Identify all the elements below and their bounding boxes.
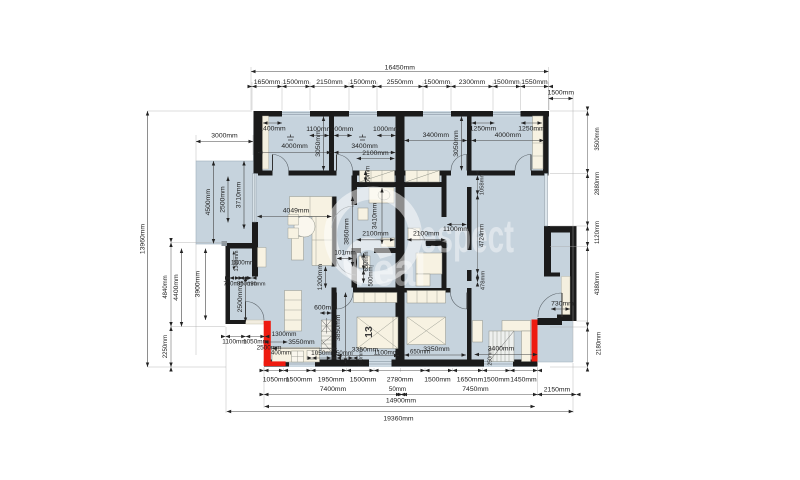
svg-text:4000mm: 4000mm bbox=[495, 132, 522, 139]
svg-text:7400mm: 7400mm bbox=[320, 386, 347, 393]
svg-text:3050mm: 3050mm bbox=[315, 130, 322, 157]
svg-text:3710mm: 3710mm bbox=[236, 181, 243, 208]
svg-text:2500mm: 2500mm bbox=[220, 186, 227, 213]
svg-text:2500mm: 2500mm bbox=[237, 286, 244, 313]
svg-text:3000mm: 3000mm bbox=[211, 133, 238, 140]
svg-text:1500mm: 1500mm bbox=[424, 79, 451, 86]
svg-text:4840mm: 4840mm bbox=[163, 275, 169, 298]
svg-text:16450mm: 16450mm bbox=[385, 64, 416, 71]
svg-text:3900mm: 3900mm bbox=[195, 271, 202, 298]
svg-text:4500mm: 4500mm bbox=[205, 189, 212, 216]
svg-text:3550mm: 3550mm bbox=[288, 339, 315, 346]
svg-text:3850mm: 3850mm bbox=[335, 314, 342, 341]
svg-text:1650mm: 1650mm bbox=[254, 79, 281, 86]
svg-text:3500mm: 3500mm bbox=[595, 127, 601, 150]
svg-text:1250mm: 1250mm bbox=[518, 126, 545, 133]
svg-text:1450mm: 1450mm bbox=[510, 377, 537, 384]
svg-text:250mm: 250mm bbox=[488, 348, 494, 365]
svg-text:2100mm: 2100mm bbox=[413, 231, 440, 238]
svg-text:1500mm: 1500mm bbox=[548, 90, 575, 97]
svg-text:13: 13 bbox=[363, 326, 375, 338]
svg-text:1500mm: 1500mm bbox=[424, 377, 451, 384]
svg-text:1500mm: 1500mm bbox=[483, 377, 510, 384]
svg-text:3400mm: 3400mm bbox=[351, 143, 378, 150]
svg-text:1000mm: 1000mm bbox=[373, 126, 400, 133]
svg-text:2300mm: 2300mm bbox=[459, 79, 486, 86]
svg-text:13960mm: 13960mm bbox=[139, 224, 146, 255]
svg-text:530mm: 530mm bbox=[359, 349, 365, 366]
svg-text:1400mm: 1400mm bbox=[259, 126, 286, 133]
svg-text:1120mm: 1120mm bbox=[595, 221, 601, 244]
svg-text:4000mm: 4000mm bbox=[281, 143, 308, 150]
svg-text:50mm: 50mm bbox=[389, 386, 406, 393]
svg-text:2180mm: 2180mm bbox=[597, 332, 603, 355]
svg-text:500mm: 500mm bbox=[369, 266, 375, 286]
svg-text:2880mm: 2880mm bbox=[595, 172, 601, 195]
svg-text:150mm: 150mm bbox=[248, 282, 266, 288]
svg-text:eal: eal bbox=[373, 244, 426, 296]
svg-text:3410mm: 3410mm bbox=[372, 202, 379, 229]
svg-text:1050mm: 1050mm bbox=[311, 350, 336, 357]
svg-text:7450mm: 7450mm bbox=[462, 386, 489, 393]
svg-text:2550mm: 2550mm bbox=[387, 79, 414, 86]
svg-text:2150mm: 2150mm bbox=[316, 79, 343, 86]
svg-text:4400mm: 4400mm bbox=[173, 274, 180, 301]
svg-text:2780mm: 2780mm bbox=[387, 377, 414, 384]
svg-text:1058mm: 1058mm bbox=[480, 173, 486, 196]
svg-text:1200mm: 1200mm bbox=[317, 264, 324, 291]
svg-text:730mm: 730mm bbox=[551, 301, 574, 308]
svg-text:1950mm: 1950mm bbox=[318, 377, 345, 384]
svg-text:1500mm: 1500mm bbox=[493, 79, 520, 86]
svg-text:1500mm: 1500mm bbox=[350, 79, 377, 86]
svg-text:3050mm: 3050mm bbox=[453, 130, 460, 157]
svg-text:650mm: 650mm bbox=[410, 350, 430, 356]
svg-text:600mm: 600mm bbox=[314, 305, 337, 312]
svg-text:2250mm: 2250mm bbox=[163, 335, 169, 358]
svg-text:650mm: 650mm bbox=[365, 166, 372, 187]
svg-text:14900mm: 14900mm bbox=[386, 398, 417, 405]
svg-text:50mm: 50mm bbox=[336, 351, 353, 357]
svg-text:1300mm: 1300mm bbox=[234, 250, 240, 271]
svg-text:900mm: 900mm bbox=[331, 126, 354, 133]
svg-text:1250mm: 1250mm bbox=[470, 126, 497, 133]
svg-text:1500mm: 1500mm bbox=[283, 79, 310, 86]
svg-text:1100mm: 1100mm bbox=[443, 226, 469, 233]
svg-text:101mm: 101mm bbox=[334, 250, 355, 257]
svg-text:4724mm: 4724mm bbox=[480, 224, 486, 247]
svg-text:478mm: 478mm bbox=[481, 271, 487, 291]
svg-text:4049mm: 4049mm bbox=[283, 208, 310, 215]
svg-text:1100mm: 1100mm bbox=[374, 350, 398, 357]
svg-text:1500mm: 1500mm bbox=[286, 377, 313, 384]
svg-text:2100mm: 2100mm bbox=[362, 231, 389, 238]
svg-text:1650mm: 1650mm bbox=[457, 377, 484, 384]
svg-text:400mm: 400mm bbox=[271, 351, 291, 357]
svg-text:2100mm: 2100mm bbox=[362, 150, 389, 157]
svg-text:19360mm: 19360mm bbox=[383, 416, 414, 423]
svg-text:1300mm: 1300mm bbox=[272, 331, 297, 338]
svg-text:2150mm: 2150mm bbox=[544, 387, 571, 394]
svg-text:3860mm: 3860mm bbox=[344, 218, 351, 245]
svg-text:3400mm: 3400mm bbox=[423, 132, 450, 139]
svg-text:1500mm: 1500mm bbox=[350, 377, 377, 384]
svg-text:1550mm: 1550mm bbox=[521, 79, 548, 86]
svg-text:4380mm: 4380mm bbox=[595, 272, 601, 295]
